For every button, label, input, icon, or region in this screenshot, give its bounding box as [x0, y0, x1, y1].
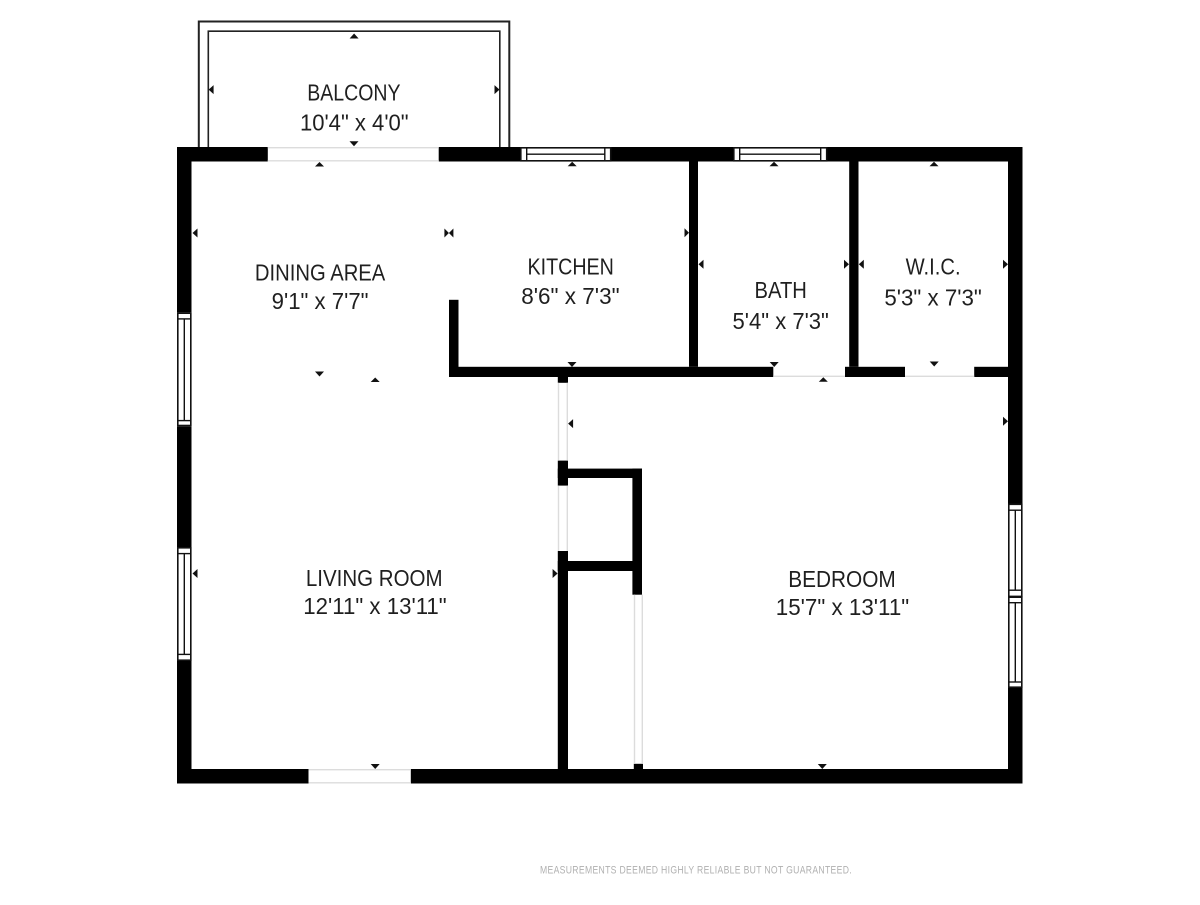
svg-text:KITCHEN: KITCHEN — [528, 253, 614, 279]
svg-text:MEASUREMENTS DEEMED HIGHLY REL: MEASUREMENTS DEEMED HIGHLY RELIABLE BUT … — [540, 864, 852, 876]
svg-text:8'6" x 7'3": 8'6" x 7'3" — [521, 283, 619, 309]
svg-text:DINING AREA: DINING AREA — [255, 259, 386, 285]
svg-text:12'11" x 13'11": 12'11" x 13'11" — [303, 593, 446, 619]
svg-text:W.I.C.: W.I.C. — [906, 254, 961, 280]
svg-text:9'1" x 7'7": 9'1" x 7'7" — [272, 288, 369, 314]
svg-text:LIVING ROOM: LIVING ROOM — [306, 565, 443, 591]
svg-text:BATH: BATH — [755, 277, 807, 303]
svg-text:BALCONY: BALCONY — [307, 80, 400, 106]
svg-text:15'7" x 13'11": 15'7" x 13'11" — [776, 594, 909, 620]
svg-text:BEDROOM: BEDROOM — [788, 566, 896, 592]
svg-text:5'4" x 7'3": 5'4" x 7'3" — [733, 308, 829, 334]
svg-text:5'3" x 7'3": 5'3" x 7'3" — [884, 284, 982, 310]
svg-text:10'4" x 4'0": 10'4" x 4'0" — [300, 109, 409, 135]
